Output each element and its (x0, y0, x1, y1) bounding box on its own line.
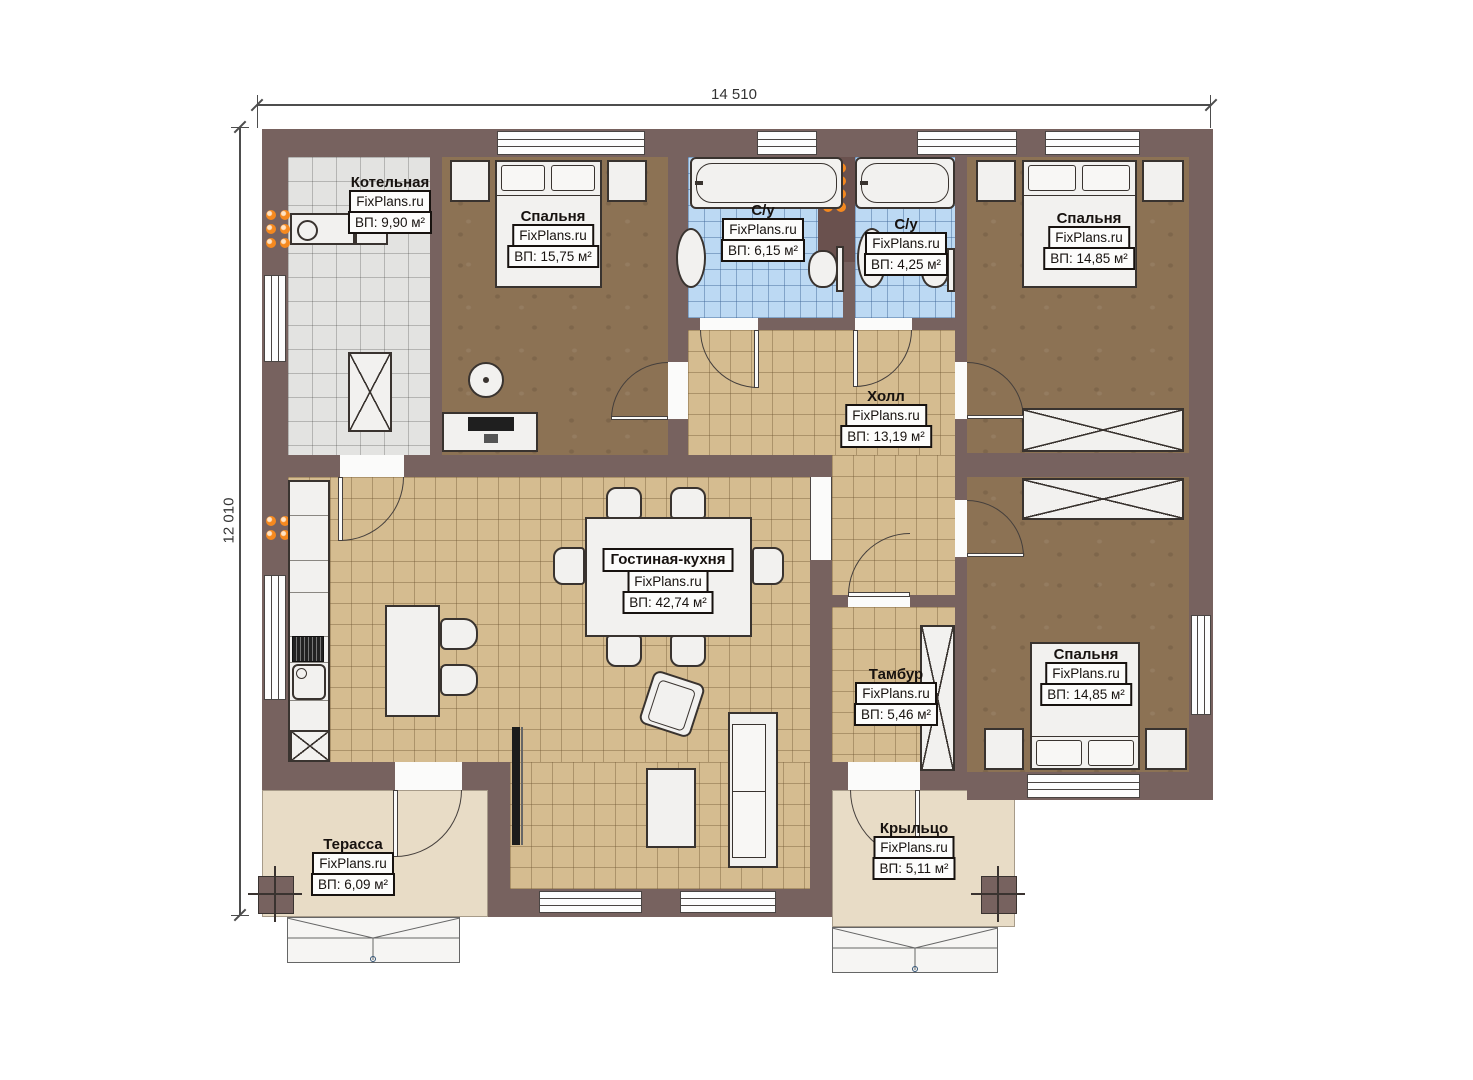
doorway-bedroom2 (955, 362, 967, 419)
window-living-south-2 (680, 891, 776, 913)
radiator-icon (266, 210, 290, 248)
desk (442, 412, 538, 452)
room-label-bedroom2: Спальня FixPlans.ru ВП: 14,85 м² (1043, 210, 1135, 270)
chair (553, 547, 585, 585)
porch-steps (832, 927, 998, 973)
doorway-bath2 (855, 318, 912, 330)
room-label-bath1: С/у FixPlans.ru ВП: 6,15 м² (721, 202, 805, 262)
wall-bedroom2-bedroom3 (967, 453, 1189, 477)
chair (606, 635, 642, 667)
door-leaf-tambour (848, 592, 910, 597)
door-leaf-bath2 (853, 330, 858, 387)
window-boiler (264, 275, 286, 362)
doorway-terrace (395, 762, 462, 790)
room-label-living: Гостиная-кухня FixPlans.ru ВП: 42,74 м² (603, 548, 734, 614)
room-label-porch: Крыльцо FixPlans.ru ВП: 5,11 м² (872, 820, 955, 880)
wall-kitchen-south (462, 762, 488, 790)
dimension-height-label: 12 010 (221, 491, 238, 551)
doorway-bedroom1 (668, 362, 688, 419)
bathtub (855, 157, 955, 209)
nightstand (976, 160, 1016, 202)
room-label-boiler: Котельная FixPlans.ru ВП: 9,90 м² (348, 174, 432, 234)
chair (670, 635, 706, 667)
doorway-bath1 (700, 318, 758, 330)
kitchen-sink (292, 664, 326, 700)
wall-hall-east (955, 157, 967, 772)
door-leaf-bedroom1 (611, 416, 668, 420)
kitchen-counter (288, 480, 330, 762)
window-living-south-1 (539, 891, 642, 913)
door-leaf-bedroom2 (967, 415, 1024, 419)
watermark: FixPlans.ru (865, 232, 947, 255)
room-area: ВП: 4,25 м² (864, 253, 948, 276)
toilet-tank (947, 248, 955, 292)
column (981, 876, 1017, 914)
door-leaf-boiler (338, 477, 343, 541)
floor-plan: 14 510 12 010 (0, 0, 1473, 1080)
terrace-steps (287, 917, 460, 963)
dimension-width-label: 14 510 (694, 86, 774, 103)
opening-living-hall (810, 477, 832, 560)
window-bedroom3-east (1191, 615, 1211, 715)
furnace (348, 352, 392, 432)
room-name: Гостиная-кухня (603, 548, 734, 572)
watermark: FixPlans.ru (855, 682, 937, 705)
watermark: FixPlans.ru (312, 852, 394, 875)
room-label-tambour: Тамбур FixPlans.ru ВП: 5,46 м² (854, 666, 938, 726)
room-area: ВП: 9,90 м² (348, 211, 432, 234)
plant-pot (468, 362, 504, 398)
watermark: FixPlans.ru (512, 224, 594, 247)
nightstand (1142, 160, 1184, 202)
column-axis (274, 866, 276, 922)
window-bathroom1 (757, 131, 817, 155)
dimension-line-top (257, 104, 1211, 106)
sofa (728, 712, 778, 868)
watermark: FixPlans.ru (349, 190, 431, 213)
coffee-table (646, 768, 696, 848)
chair (670, 487, 706, 519)
nightstand (607, 160, 647, 202)
window-bedroom1 (497, 131, 645, 155)
toilet (808, 250, 838, 288)
room-label-terrace: Терасса FixPlans.ru ВП: 6,09 м² (311, 836, 395, 896)
wardrobe (1022, 478, 1184, 520)
chair (752, 547, 784, 585)
nightstand (984, 728, 1024, 770)
bar-stool (440, 664, 478, 696)
tv (512, 727, 520, 845)
watermark: FixPlans.ru (1048, 226, 1130, 249)
room-label-bedroom1: Спальня FixPlans.ru ВП: 15,75 м² (507, 208, 599, 268)
room-area: ВП: 5,11 м² (872, 857, 955, 880)
window-kitchen (264, 575, 286, 700)
bar-stool (440, 618, 478, 650)
room-area: ВП: 15,75 м² (507, 245, 599, 268)
door-leaf-bedroom3 (967, 553, 1024, 557)
dimension-extension (1210, 95, 1211, 128)
watermark: FixPlans.ru (627, 570, 709, 593)
doorway-boiler (340, 455, 404, 477)
tv-screen-edge (521, 727, 523, 845)
column-axis (997, 866, 999, 922)
window-bedroom2 (1045, 131, 1140, 155)
room-area: ВП: 5,46 м² (854, 703, 938, 726)
room-area: ВП: 14,85 м² (1043, 247, 1135, 270)
room-label-bath2: С/у FixPlans.ru ВП: 4,25 м² (864, 216, 948, 276)
radiator-icon (266, 516, 290, 540)
kitchen-island (385, 605, 440, 717)
wall-living-east (810, 560, 832, 917)
door-leaf-bath1 (754, 330, 759, 388)
wardrobe (1022, 408, 1184, 452)
dishwasher (290, 730, 330, 762)
room-label-hall: Холл FixPlans.ru ВП: 13,19 м² (840, 388, 932, 448)
wall-terrace-side (488, 762, 510, 917)
doorway-entrance (848, 762, 920, 790)
watermark: FixPlans.ru (873, 836, 955, 859)
room-label-bedroom3: Спальня FixPlans.ru ВП: 14,85 м² (1040, 646, 1132, 706)
room-area: ВП: 14,85 м² (1040, 683, 1132, 706)
window-bedroom3-south (1027, 774, 1140, 798)
room-area: ВП: 13,19 м² (840, 425, 932, 448)
nightstand (450, 160, 490, 202)
window-bathroom2 (917, 131, 1017, 155)
nightstand (1145, 728, 1187, 770)
room-area: ВП: 6,15 м² (721, 239, 805, 262)
watermark: FixPlans.ru (1045, 662, 1127, 685)
wall-kitchen-south (288, 762, 395, 790)
dimension-extension (257, 95, 258, 128)
toilet-tank (836, 246, 844, 292)
watermark: FixPlans.ru (845, 404, 927, 427)
doorway-bedroom3 (955, 500, 967, 557)
chair (606, 487, 642, 519)
kitchen-radiator (292, 636, 324, 662)
dimension-line-left (239, 127, 241, 915)
washbasin (676, 228, 706, 288)
watermark: FixPlans.ru (722, 218, 804, 241)
water-heater (290, 213, 355, 245)
column (258, 876, 294, 914)
room-area: ВП: 42,74 м² (622, 591, 714, 614)
room-area: ВП: 6,09 м² (311, 873, 395, 896)
